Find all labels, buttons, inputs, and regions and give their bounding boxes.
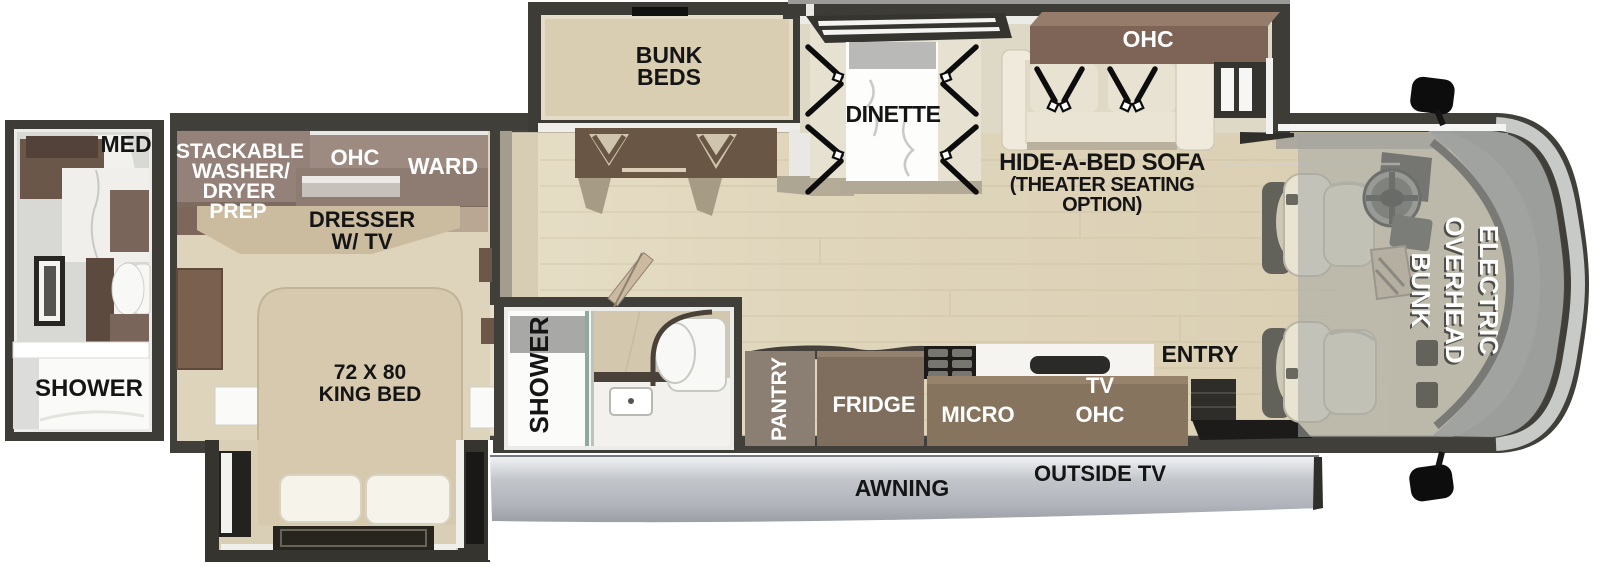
svg-text:FRIDGE: FRIDGE: [832, 392, 915, 417]
svg-text:MED: MED: [100, 131, 151, 157]
svg-text:AWNING: AWNING: [855, 475, 950, 501]
svg-text:PREP: PREP: [209, 200, 266, 223]
svg-text:ELECTRIC: ELECTRIC: [1474, 225, 1504, 355]
svg-text:SHOWER: SHOWER: [35, 375, 143, 402]
svg-text:HIDE-A-BED SOFA: HIDE-A-BED SOFA: [999, 149, 1205, 176]
svg-text:W/ TV: W/ TV: [331, 229, 392, 254]
svg-text:OUTSIDE TV: OUTSIDE TV: [1034, 461, 1166, 486]
svg-text:DINETTE: DINETTE: [846, 101, 941, 127]
svg-text:BEDS: BEDS: [637, 64, 701, 90]
svg-text:OVERHEAD: OVERHEAD: [1440, 216, 1470, 363]
svg-text:MICRO: MICRO: [941, 402, 1014, 427]
svg-text:BUNK: BUNK: [1406, 252, 1436, 327]
svg-text:OPTION): OPTION): [1062, 194, 1142, 216]
svg-text:WARD: WARD: [408, 153, 478, 179]
svg-text:TV: TV: [1086, 373, 1114, 398]
svg-text:OHC: OHC: [1122, 26, 1173, 52]
svg-text:PANTRY: PANTRY: [768, 357, 791, 441]
svg-text:ENTRY: ENTRY: [1161, 341, 1238, 367]
svg-text:(THEATER SEATING: (THEATER SEATING: [1010, 174, 1195, 196]
svg-text:KING BED: KING BED: [319, 383, 422, 406]
svg-text:SHOWER: SHOWER: [524, 316, 554, 433]
svg-text:OHC: OHC: [331, 145, 380, 170]
svg-text:72 X 80: 72 X 80: [334, 361, 406, 384]
svg-text:OHC: OHC: [1076, 402, 1125, 427]
